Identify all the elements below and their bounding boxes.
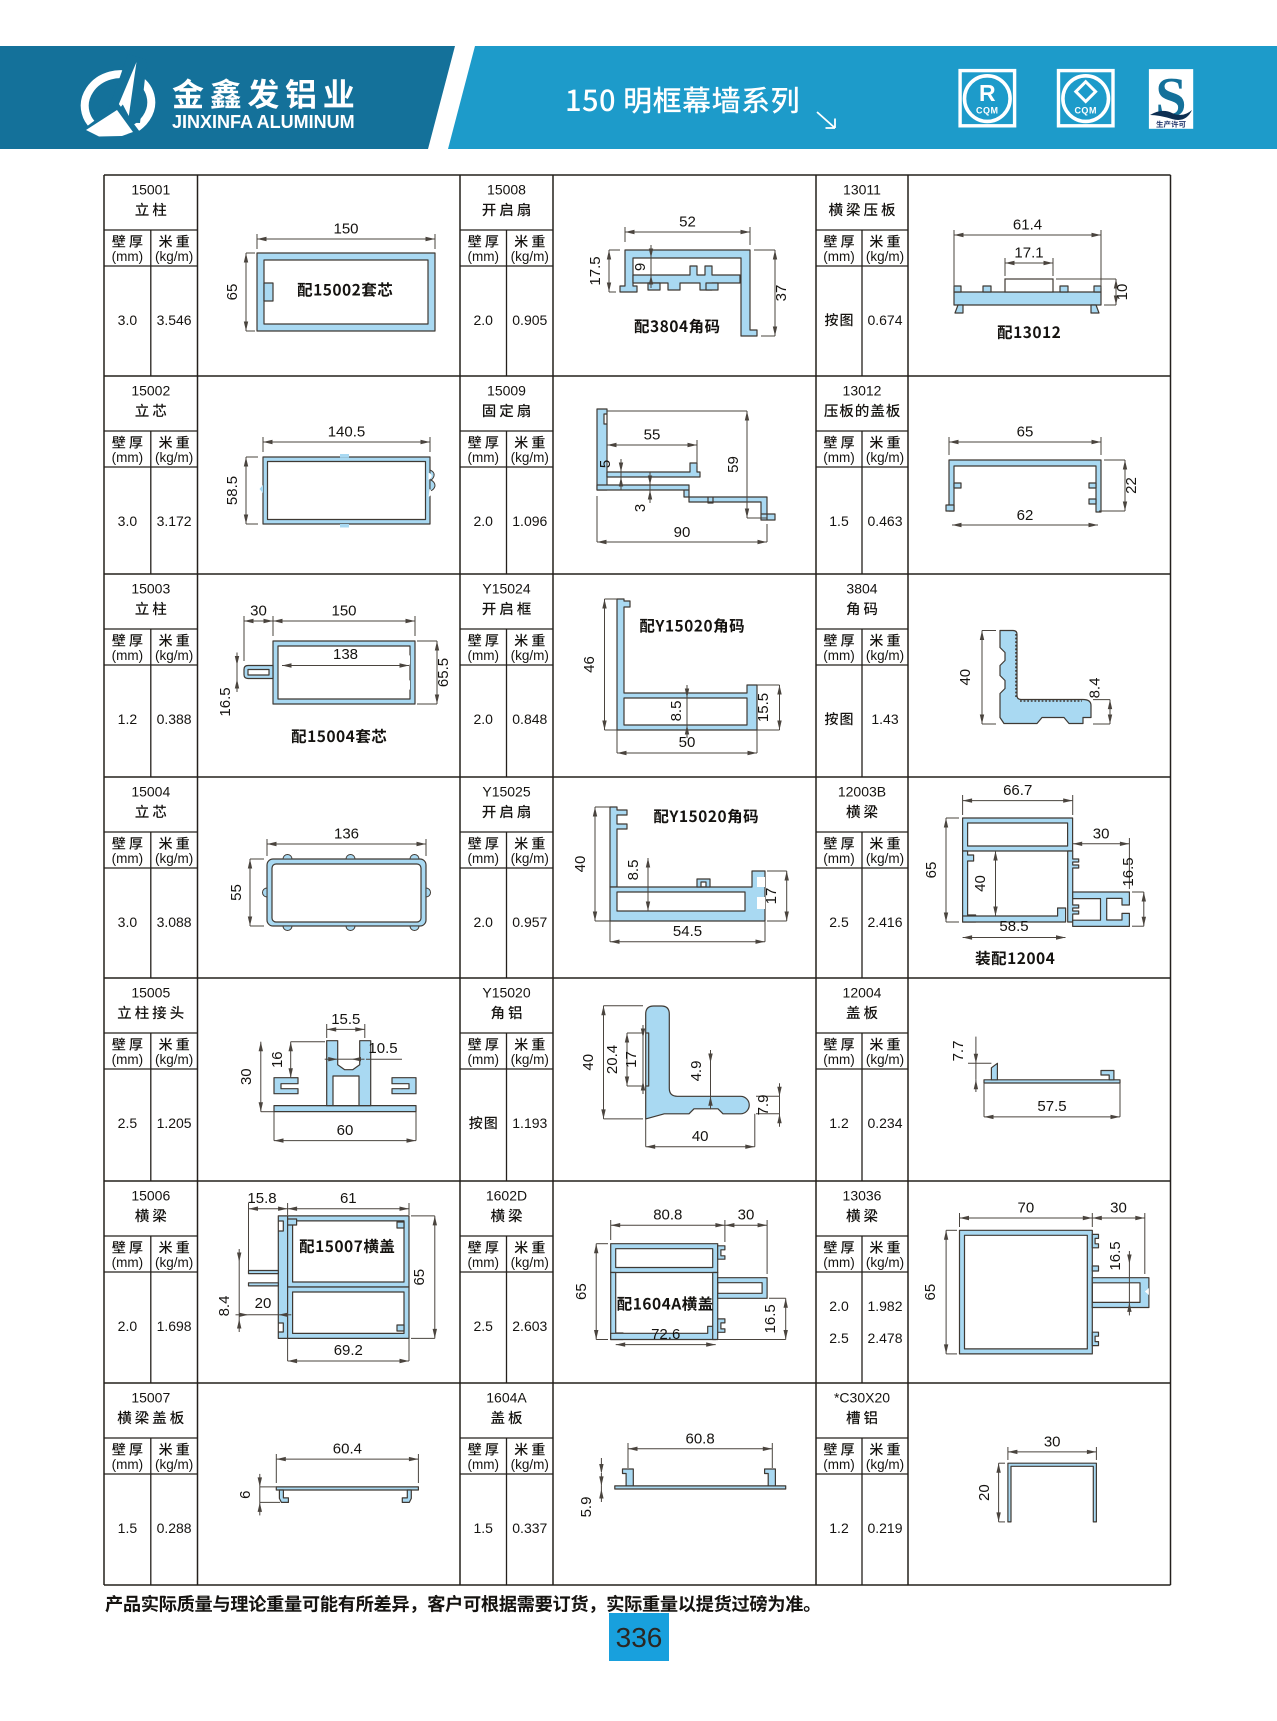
svg-text:0.234: 0.234 [867, 1115, 902, 1131]
svg-text:(mm): (mm) [467, 648, 498, 663]
svg-text:65: 65 [411, 1269, 428, 1286]
svg-text:0.463: 0.463 [867, 513, 902, 529]
svg-text:17.1: 17.1 [1014, 245, 1043, 262]
svg-text:(kg/m): (kg/m) [511, 851, 549, 866]
svg-text:1.2: 1.2 [118, 711, 138, 727]
svg-text:3.546: 3.546 [157, 312, 192, 328]
svg-text:(mm): (mm) [467, 1255, 498, 1270]
svg-text:16.5: 16.5 [1107, 1241, 1124, 1270]
svg-text:7.9: 7.9 [755, 1095, 772, 1116]
svg-text:(kg/m): (kg/m) [866, 851, 904, 866]
svg-text:16.5: 16.5 [217, 687, 234, 716]
svg-text:52: 52 [679, 214, 696, 231]
svg-text:0.288: 0.288 [157, 1520, 192, 1536]
svg-text:Y15025: Y15025 [482, 784, 530, 800]
svg-text:(kg/m): (kg/m) [155, 1052, 193, 1067]
svg-text:22: 22 [1123, 477, 1140, 494]
svg-text:(mm): (mm) [823, 851, 854, 866]
svg-text:2.416: 2.416 [867, 914, 902, 930]
svg-text:30: 30 [1093, 825, 1110, 842]
svg-text:1604A: 1604A [486, 1390, 527, 1406]
svg-text:70: 70 [1018, 1200, 1035, 1217]
svg-text:(mm): (mm) [112, 648, 143, 663]
svg-text:15004: 15004 [131, 784, 170, 800]
svg-text:20: 20 [255, 1295, 272, 1312]
svg-text:2.0: 2.0 [473, 513, 493, 529]
svg-text:55: 55 [228, 884, 245, 901]
svg-text:5.9: 5.9 [578, 1497, 595, 1518]
svg-text:1.2: 1.2 [829, 1115, 849, 1131]
svg-text:61.4: 61.4 [1013, 217, 1042, 234]
svg-text:13011: 13011 [843, 182, 881, 198]
svg-text:140.5: 140.5 [328, 424, 366, 441]
svg-text:(kg/m): (kg/m) [511, 1255, 549, 1270]
svg-text:(kg/m): (kg/m) [866, 249, 904, 264]
svg-text:R: R [979, 80, 996, 106]
svg-text:55: 55 [644, 427, 661, 444]
svg-text:69.2: 69.2 [334, 1342, 363, 1359]
svg-text:16.5: 16.5 [762, 1304, 779, 1333]
svg-text:2.0: 2.0 [473, 914, 493, 930]
svg-text:10: 10 [1114, 284, 1131, 301]
svg-text:57.5: 57.5 [1037, 1098, 1066, 1115]
svg-text:(kg/m): (kg/m) [155, 1255, 193, 1270]
svg-text:54.5: 54.5 [673, 923, 702, 940]
svg-text:30: 30 [1110, 1200, 1127, 1217]
svg-text:8.5: 8.5 [668, 701, 685, 722]
svg-text:90: 90 [674, 524, 691, 541]
svg-text:(mm): (mm) [467, 851, 498, 866]
svg-text:15006: 15006 [131, 1188, 170, 1204]
svg-text:(kg/m): (kg/m) [511, 249, 549, 264]
svg-text:(mm): (mm) [823, 249, 854, 264]
svg-text:12004: 12004 [843, 985, 882, 1001]
svg-text:(kg/m): (kg/m) [511, 450, 549, 465]
svg-text:*C30X20: *C30X20 [834, 1390, 890, 1406]
svg-text:13036: 13036 [843, 1188, 882, 1204]
svg-text:8.5: 8.5 [625, 860, 642, 881]
svg-text:5: 5 [597, 460, 614, 468]
svg-text:336: 336 [616, 1622, 663, 1653]
svg-text:3.088: 3.088 [157, 914, 192, 930]
svg-text:40: 40 [957, 669, 974, 686]
svg-text:72.6: 72.6 [651, 1326, 680, 1343]
svg-text:(mm): (mm) [112, 1457, 143, 1472]
svg-text:(mm): (mm) [823, 648, 854, 663]
svg-text:138: 138 [333, 646, 358, 663]
svg-text:0.337: 0.337 [512, 1520, 547, 1536]
svg-text:65: 65 [224, 284, 241, 301]
svg-text:12003B: 12003B [838, 784, 886, 800]
svg-text:1.698: 1.698 [157, 1318, 192, 1334]
svg-text:1.5: 1.5 [829, 513, 849, 529]
svg-text:1.5: 1.5 [118, 1520, 138, 1536]
svg-text:(kg/m): (kg/m) [511, 1457, 549, 1472]
svg-text:16.5: 16.5 [1120, 857, 1137, 886]
svg-text:1.205: 1.205 [157, 1115, 192, 1131]
svg-text:1.5: 1.5 [473, 1520, 493, 1536]
svg-text:9: 9 [632, 263, 649, 271]
svg-text:37: 37 [773, 285, 790, 302]
svg-text:60.4: 60.4 [333, 1441, 362, 1458]
svg-text:65: 65 [1017, 424, 1034, 441]
svg-text:30: 30 [1044, 1433, 1061, 1450]
svg-text:(kg/m): (kg/m) [866, 648, 904, 663]
svg-text:2.603: 2.603 [512, 1318, 547, 1334]
svg-text:15005: 15005 [131, 985, 170, 1001]
svg-text:(mm): (mm) [467, 1052, 498, 1067]
svg-text:1.193: 1.193 [512, 1115, 547, 1131]
svg-text:61: 61 [340, 1190, 357, 1207]
svg-text:150: 150 [331, 603, 356, 620]
svg-text:16: 16 [269, 1051, 286, 1068]
svg-text:2.0: 2.0 [473, 312, 493, 328]
svg-text:2.5: 2.5 [829, 914, 849, 930]
svg-text:60: 60 [337, 1122, 354, 1139]
svg-text:1.2: 1.2 [829, 1520, 849, 1536]
svg-text:65.5: 65.5 [435, 658, 452, 687]
svg-text:0.905: 0.905 [512, 312, 547, 328]
svg-text:15007: 15007 [131, 1390, 170, 1406]
svg-text:(kg/m): (kg/m) [155, 648, 193, 663]
svg-text:2.0: 2.0 [473, 711, 493, 727]
svg-text:CQM: CQM [1074, 106, 1097, 116]
svg-text:2.0: 2.0 [118, 1318, 138, 1334]
svg-text:(kg/m): (kg/m) [866, 1255, 904, 1270]
svg-text:0.848: 0.848 [512, 711, 547, 727]
svg-text:15002: 15002 [131, 383, 170, 399]
svg-text:3.0: 3.0 [118, 312, 138, 328]
svg-text:60.8: 60.8 [685, 1430, 714, 1447]
svg-text:(mm): (mm) [112, 1052, 143, 1067]
svg-text:S: S [1155, 67, 1186, 129]
svg-text:13012: 13012 [843, 383, 882, 399]
svg-text:62: 62 [1017, 507, 1034, 524]
svg-text:0.219: 0.219 [867, 1520, 902, 1536]
svg-text:8.4: 8.4 [1087, 678, 1104, 699]
svg-text:(mm): (mm) [467, 450, 498, 465]
svg-text:(kg/m): (kg/m) [155, 249, 193, 264]
svg-text:(mm): (mm) [112, 450, 143, 465]
svg-text:(mm): (mm) [467, 249, 498, 264]
svg-text:(kg/m): (kg/m) [866, 1457, 904, 1472]
svg-text:(mm): (mm) [823, 1052, 854, 1067]
svg-text:Y15020: Y15020 [482, 985, 530, 1001]
svg-text:15008: 15008 [487, 182, 526, 198]
svg-text:2.0: 2.0 [829, 1298, 849, 1314]
svg-text:8.4: 8.4 [216, 1296, 233, 1317]
svg-text:(mm): (mm) [112, 1255, 143, 1270]
svg-text:17: 17 [623, 1051, 640, 1068]
svg-text:(kg/m): (kg/m) [866, 1052, 904, 1067]
svg-text:20.4: 20.4 [604, 1045, 621, 1074]
svg-text:15009: 15009 [487, 383, 526, 399]
svg-text:17: 17 [763, 888, 780, 905]
svg-text:1.982: 1.982 [867, 1298, 902, 1314]
svg-text:1.43: 1.43 [871, 711, 898, 727]
svg-text:17.5: 17.5 [587, 256, 604, 285]
svg-text:58.5: 58.5 [224, 476, 241, 505]
svg-text:30: 30 [238, 1068, 255, 1085]
svg-text:7.7: 7.7 [950, 1041, 967, 1062]
svg-text:20: 20 [976, 1484, 993, 1501]
svg-text:4.9: 4.9 [688, 1061, 705, 1082]
svg-text:(kg/m): (kg/m) [511, 648, 549, 663]
svg-text:58.5: 58.5 [999, 918, 1028, 935]
svg-text:65: 65 [573, 1283, 590, 1300]
svg-text:65: 65 [923, 862, 940, 879]
svg-text:(mm): (mm) [112, 249, 143, 264]
svg-text:10.5: 10.5 [368, 1040, 397, 1057]
svg-text:3.0: 3.0 [118, 914, 138, 930]
svg-text:46: 46 [581, 656, 598, 673]
svg-text:2.5: 2.5 [473, 1318, 493, 1334]
svg-text:1.096: 1.096 [512, 513, 547, 529]
svg-text:CQM: CQM [976, 106, 999, 116]
svg-text:(kg/m): (kg/m) [155, 450, 193, 465]
svg-text:3804: 3804 [846, 581, 877, 597]
svg-text:15001: 15001 [131, 182, 170, 198]
svg-text:3.0: 3.0 [118, 513, 138, 529]
svg-text:40: 40 [692, 1128, 709, 1145]
svg-text:30: 30 [738, 1207, 755, 1224]
svg-text:66.7: 66.7 [1003, 782, 1032, 799]
svg-text:(mm): (mm) [823, 1255, 854, 1270]
svg-text:(mm): (mm) [823, 450, 854, 465]
svg-text:2.5: 2.5 [118, 1115, 138, 1131]
svg-text:1602D: 1602D [486, 1188, 527, 1204]
svg-text:40: 40 [572, 856, 589, 873]
svg-text:15.5: 15.5 [331, 1011, 360, 1028]
svg-text:JINXINFA ALUMINUM: JINXINFA ALUMINUM [172, 112, 355, 132]
svg-text:0.957: 0.957 [512, 914, 547, 930]
svg-text:15003: 15003 [131, 581, 170, 597]
svg-text:(kg/m): (kg/m) [511, 1052, 549, 1067]
svg-text:(kg/m): (kg/m) [866, 450, 904, 465]
svg-text:0.388: 0.388 [157, 711, 192, 727]
svg-text:(mm): (mm) [823, 1457, 854, 1472]
svg-text:(mm): (mm) [467, 1457, 498, 1472]
svg-text:6: 6 [237, 1491, 254, 1499]
svg-text:Y15024: Y15024 [482, 581, 530, 597]
svg-text:150: 150 [333, 221, 358, 238]
svg-text:(kg/m): (kg/m) [155, 1457, 193, 1472]
svg-text:3: 3 [632, 504, 649, 512]
svg-text:30: 30 [250, 603, 267, 620]
svg-text:40: 40 [580, 1054, 597, 1071]
svg-text:15.5: 15.5 [755, 693, 772, 722]
svg-text:50: 50 [679, 734, 696, 751]
svg-text:0.674: 0.674 [867, 312, 902, 328]
svg-text:80.8: 80.8 [653, 1207, 682, 1224]
svg-text:(kg/m): (kg/m) [155, 851, 193, 866]
svg-text:15.8: 15.8 [247, 1190, 276, 1207]
svg-text:136: 136 [334, 826, 359, 843]
svg-text:59: 59 [725, 456, 742, 473]
svg-text:(mm): (mm) [112, 851, 143, 866]
svg-text:3.172: 3.172 [157, 513, 192, 529]
svg-text:2.5: 2.5 [829, 1330, 849, 1346]
svg-text:2.478: 2.478 [867, 1330, 902, 1346]
svg-text:40: 40 [972, 875, 989, 892]
svg-text:65: 65 [922, 1284, 939, 1301]
